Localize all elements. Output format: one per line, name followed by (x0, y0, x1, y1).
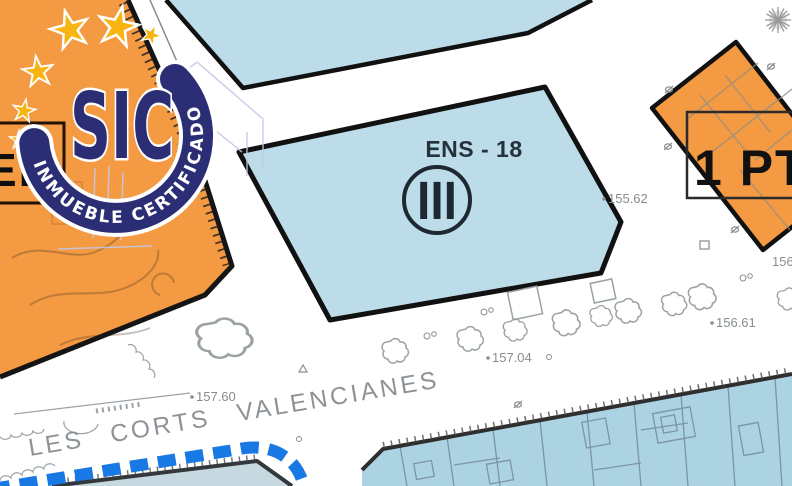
elevation-label: 155.62 (608, 191, 648, 206)
tree-clump (197, 319, 252, 358)
map-canvas: ENS - 18 III 1 PT EL LES CORTS VALENCIAN… (0, 0, 792, 486)
zone-label: ENS - 18 (425, 136, 522, 162)
elevation-label: 157.04 (492, 350, 532, 365)
elevation-label: 156 (772, 254, 792, 269)
floors-roman-numeral: III (417, 171, 457, 231)
cadastral-map: ENS - 18 III 1 PT EL LES CORTS VALENCIAN… (0, 0, 792, 486)
elevation-label: 157.60 (196, 389, 236, 404)
parcel-right-label: 1 PT (694, 140, 792, 196)
elevation-label: 156.61 (716, 315, 756, 330)
watermark-acronym: SIC (70, 73, 174, 180)
